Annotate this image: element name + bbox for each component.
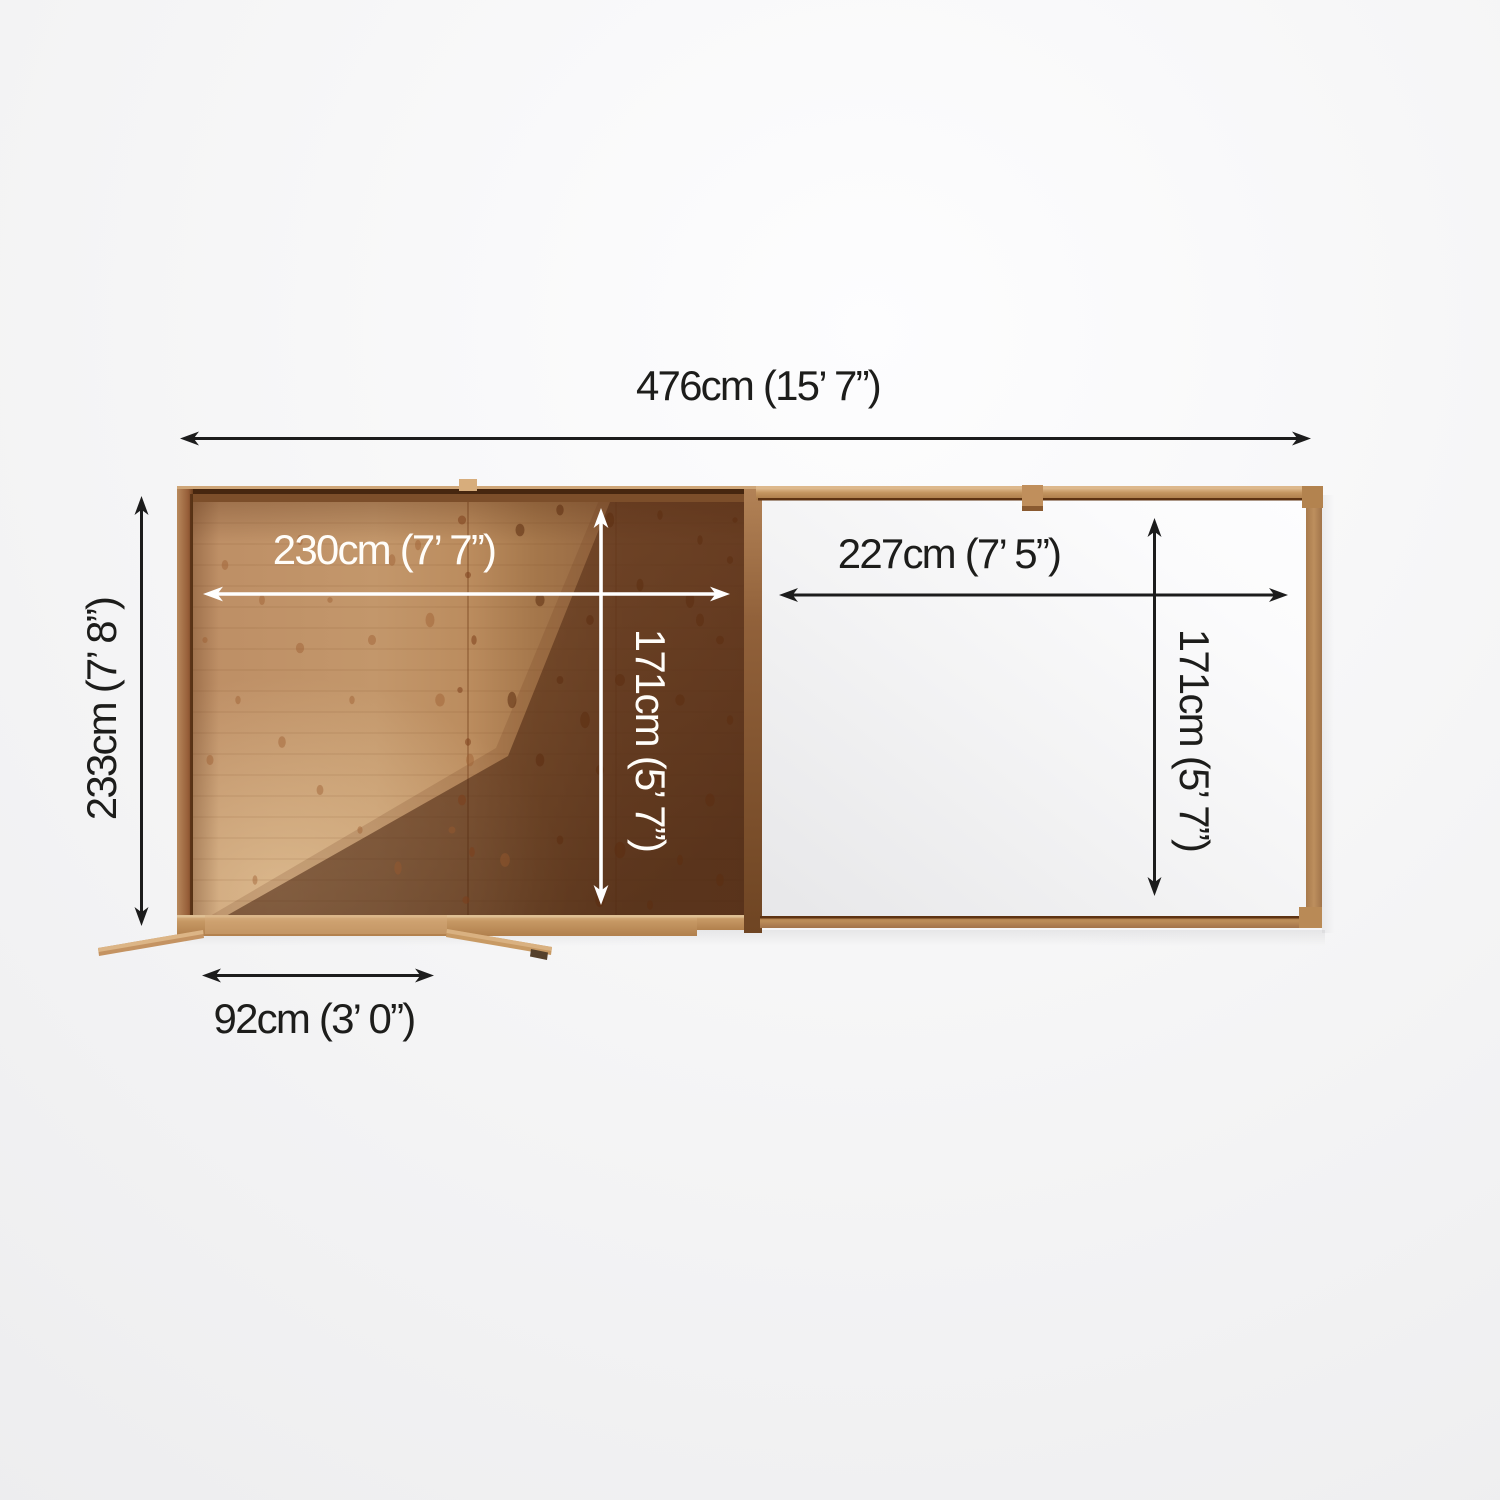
svg-text:476cm (15’ 7”): 476cm (15’ 7”) <box>636 362 880 409</box>
svg-text:233cm (7’ 8”): 233cm (7’ 8”) <box>78 598 125 820</box>
svg-text:230cm (7’ 7”): 230cm (7’ 7”) <box>273 526 495 573</box>
svg-text:92cm (3’ 0”): 92cm (3’ 0”) <box>214 995 415 1042</box>
svg-text:171cm (5’ 7”): 171cm (5’ 7”) <box>627 629 674 851</box>
svg-text:171cm (5’ 7”): 171cm (5’ 7”) <box>1171 629 1218 851</box>
svg-text:227cm (7’ 5”): 227cm (7’ 5”) <box>838 530 1060 577</box>
